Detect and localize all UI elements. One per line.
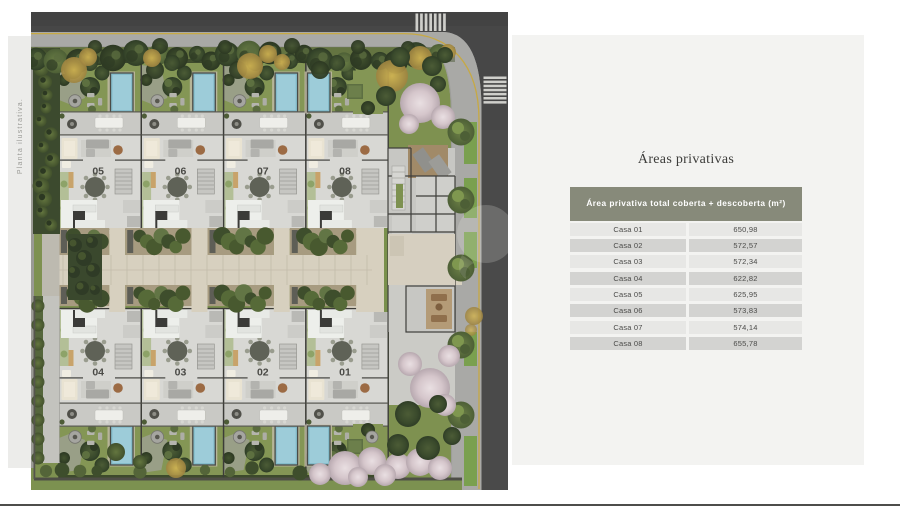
svg-text:04: 04 bbox=[92, 367, 104, 379]
svg-text:07: 07 bbox=[257, 166, 269, 178]
svg-text:06: 06 bbox=[175, 166, 187, 178]
svg-text:08: 08 bbox=[339, 166, 351, 178]
svg-text:01: 01 bbox=[339, 367, 351, 379]
svg-text:03: 03 bbox=[175, 367, 187, 379]
svg-text:05: 05 bbox=[92, 166, 104, 178]
svg-text:02: 02 bbox=[257, 367, 269, 379]
